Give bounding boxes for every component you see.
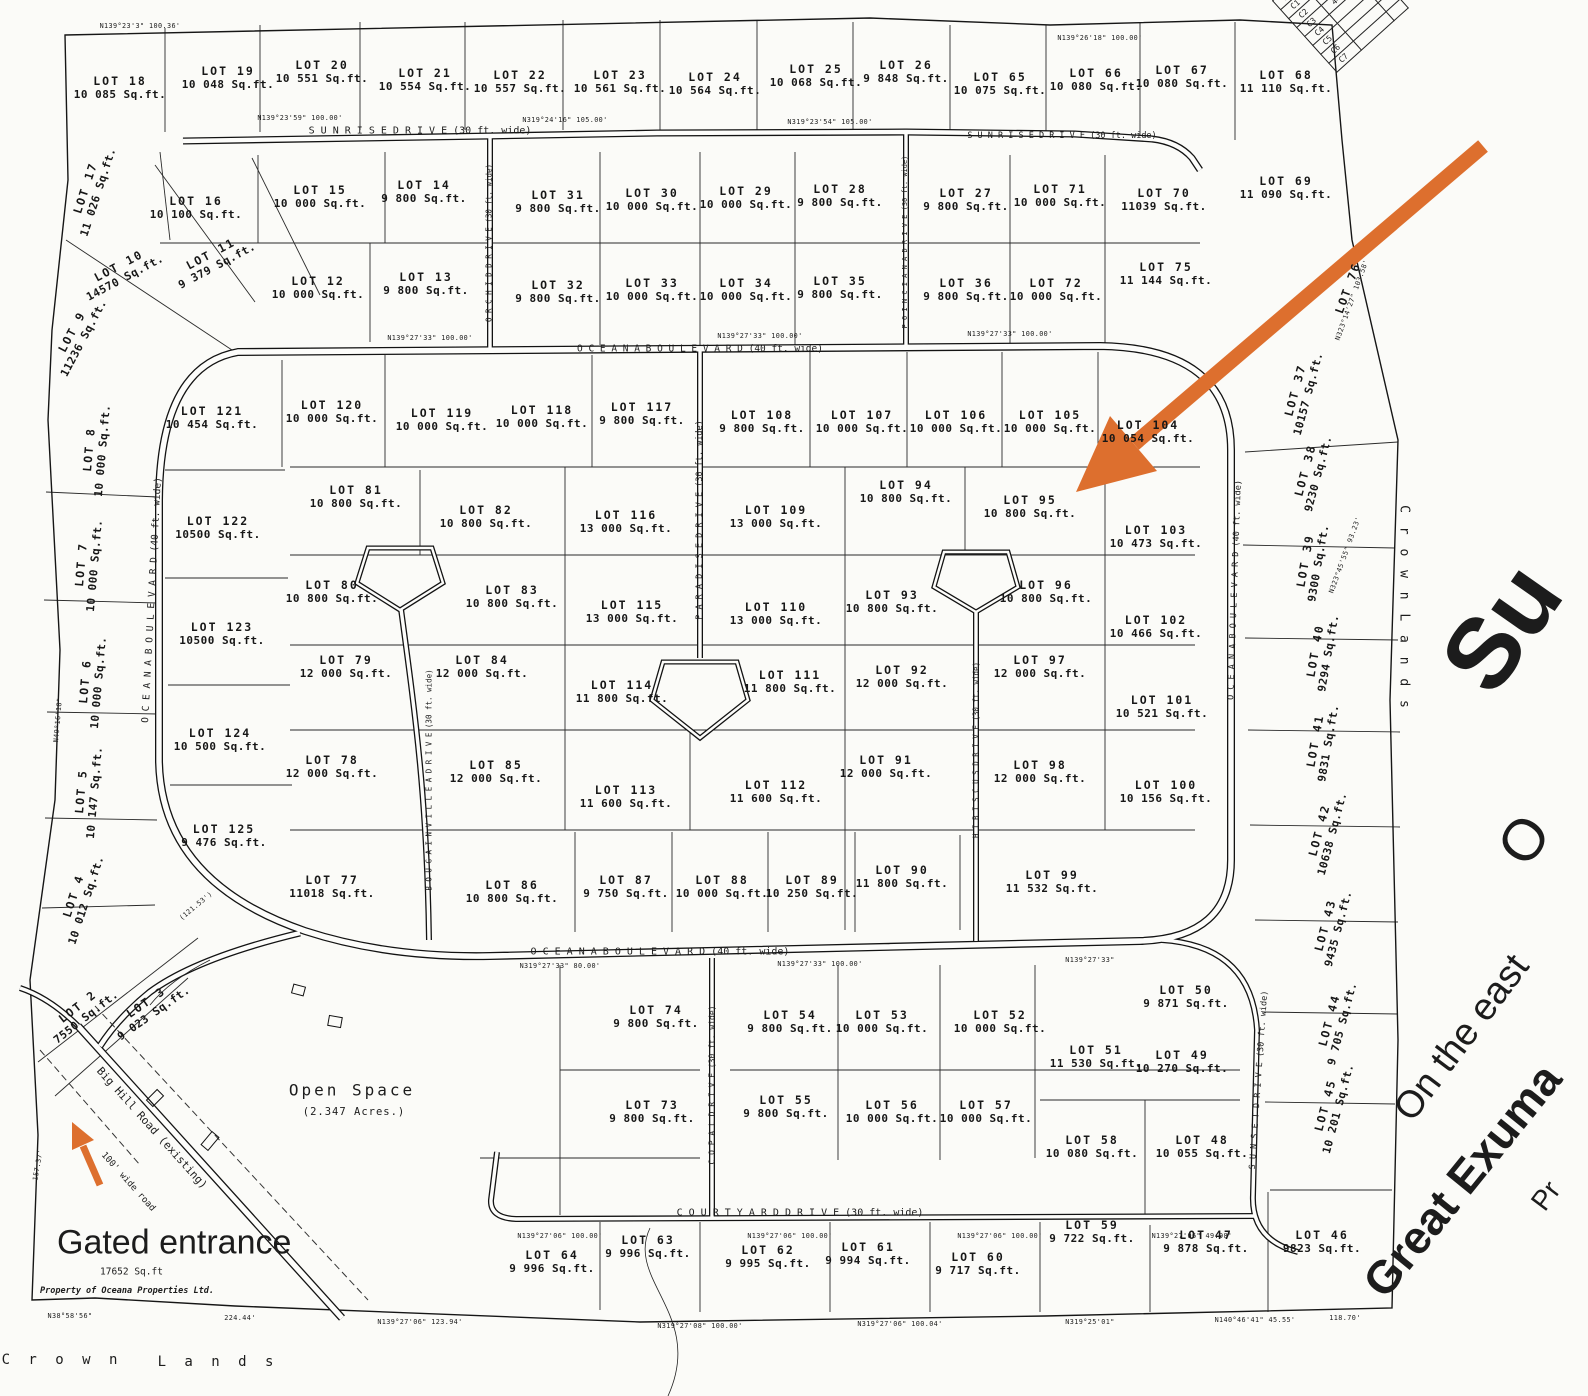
lot-number: LOT 15 — [274, 183, 367, 197]
lot-70-label: LOT 7011039 Sq.ft. — [1121, 186, 1206, 214]
lot-number: LOT 60 — [935, 1250, 1020, 1264]
lot-number: LOT 88 — [676, 873, 769, 887]
lot-64-label: LOT 649 996 Sq.ft. — [509, 1248, 594, 1276]
lot-56-label: LOT 5610 000 Sq.ft. — [846, 1098, 939, 1126]
lot-60-label: LOT 609 717 Sq.ft. — [935, 1250, 1020, 1278]
lot-number: LOT 26 — [863, 58, 948, 72]
lot-46-label: LOT 469823 Sq.ft. — [1283, 1228, 1361, 1256]
lot-51-label: LOT 5111 530 Sq.ft. — [1050, 1043, 1143, 1071]
lot-52-label: LOT 5210 000 Sq.ft. — [954, 1008, 1047, 1036]
lot-number: LOT 80 — [286, 578, 379, 592]
lot-12-label: LOT 1210 000 Sq.ft. — [272, 274, 365, 302]
lot-number: LOT 70 — [1121, 186, 1206, 200]
lot-area: 10 000 Sq.ft. — [836, 1022, 929, 1036]
lot-area: 9 717 Sq.ft. — [935, 1264, 1020, 1278]
lot-118-label: LOT 11810 000 Sq.ft. — [496, 403, 589, 431]
lot-area: 10 800 Sq.ft. — [984, 507, 1077, 521]
lot-number: LOT 33 — [606, 276, 699, 290]
lot-87-label: LOT 879 750 Sq.ft. — [583, 873, 668, 901]
copal: C O P A L D R I V E (30 ft. wide) — [708, 1006, 717, 1165]
lot-58-label: LOT 5810 080 Sq.ft. — [1046, 1133, 1139, 1161]
lot-24-label: LOT 2410 564 Sq.ft. — [669, 70, 762, 98]
lot-number: LOT 54 — [747, 1008, 832, 1022]
lot-78-label: LOT 7812 000 Sq.ft. — [286, 753, 379, 781]
lot-number: LOT 64 — [509, 1248, 594, 1262]
lot-number: LOT 35 — [797, 274, 882, 288]
lot-number: LOT 49 — [1136, 1048, 1229, 1062]
lot-number: LOT 86 — [466, 878, 559, 892]
lot-area: 12 000 Sq.ft. — [450, 772, 543, 786]
lot-area: 10 564 Sq.ft. — [669, 84, 762, 98]
lot-area: 9 995 Sq.ft. — [725, 1257, 810, 1271]
lot-number: LOT 125 — [181, 822, 266, 836]
lot-65-label: LOT 6510 075 Sq.ft. — [954, 70, 1047, 98]
lot-area: 10 080 Sq.ft. — [1050, 80, 1143, 94]
lot-area: 11039 Sq.ft. — [1121, 200, 1206, 214]
bearing-label-9: N139°27'33" 100.00' — [777, 960, 862, 968]
lot-number: LOT 119 — [396, 406, 489, 420]
lot-area: 11 600 Sq.ft. — [730, 792, 823, 806]
lot-54-label: LOT 549 800 Sq.ft. — [747, 1008, 832, 1036]
lot-104-label: LOT 10410 054 Sq.ft. — [1102, 418, 1195, 446]
lot-area: 10 000 Sq.ft. — [816, 422, 909, 436]
lot-area: 10 000 Sq.ft. — [700, 290, 793, 304]
lot-33-label: LOT 3310 000 Sq.ft. — [606, 276, 699, 304]
lot-area: 10 100 Sq.ft. — [150, 208, 243, 222]
lot-area: 9 800 Sq.ft. — [743, 1107, 828, 1121]
lot-number: LOT 68 — [1240, 68, 1333, 82]
bearing-label-19: N319°25'01" — [1065, 1318, 1114, 1326]
poinciana: P O I N C I A N A D R I V E (30 ft. wide… — [901, 156, 909, 329]
lot-number: LOT 57 — [940, 1098, 1033, 1112]
lot-area: 9 800 Sq.ft. — [923, 200, 1008, 214]
lot-area: 9 800 Sq.ft. — [923, 290, 1008, 304]
open-space-structure-2 — [327, 1015, 343, 1028]
lot-number: LOT 20 — [276, 58, 369, 72]
lot-number: LOT 75 — [1120, 260, 1213, 274]
lot-103-label: LOT 10310 473 Sq.ft. — [1110, 523, 1203, 551]
lot-area: 10 557 Sq.ft. — [474, 82, 567, 96]
lot-number: LOT 67 — [1136, 63, 1229, 77]
lot-number: LOT 27 — [923, 186, 1008, 200]
lot-area: 10 466 Sq.ft. — [1110, 627, 1203, 641]
lot-35-label: LOT 359 800 Sq.ft. — [797, 274, 882, 302]
lot-area: 11 144 Sq.ft. — [1120, 274, 1213, 288]
lot-68-label: LOT 6811 110 Sq.ft. — [1240, 68, 1333, 96]
lot-number: LOT 61 — [825, 1240, 910, 1254]
lot-number: LOT 53 — [836, 1008, 929, 1022]
paradise: P A R A D I S E D R I V E (30 ft. wide) — [695, 420, 705, 620]
bougainvillea: B O U G A I N V I L L E A D R I V E (30 … — [425, 669, 434, 890]
lot-number: LOT 124 — [174, 726, 267, 740]
lot-area: 9 800 Sq.ft. — [747, 1022, 832, 1036]
lot-area: 9 994 Sq.ft. — [825, 1254, 910, 1268]
lot-number: LOT 116 — [580, 508, 673, 522]
lot-82-label: LOT 8210 800 Sq.ft. — [440, 503, 533, 531]
lot-number: LOT 56 — [846, 1098, 939, 1112]
bearing-label-11: N139°27'06" 100.00' — [517, 1232, 602, 1240]
lot-area: 9 800 Sq.ft. — [609, 1112, 694, 1126]
lot-area: 10 080 Sq.ft. — [1046, 1147, 1139, 1161]
lot-area: 11 090 Sq.ft. — [1240, 188, 1333, 202]
lot-29-label: LOT 2910 000 Sq.ft. — [700, 184, 793, 212]
lot-number: LOT 77 — [289, 873, 374, 887]
oceana-bottom: O C E A N A B O U L E V A R D (40 ft. wi… — [531, 947, 790, 958]
lot-number: LOT 24 — [669, 70, 762, 84]
bearing-label-2: N319°24'16" 105.00' — [522, 116, 607, 124]
lot-85-label: LOT 8512 000 Sq.ft. — [450, 758, 543, 786]
lot-27-label: LOT 279 800 Sq.ft. — [923, 186, 1008, 214]
lot-number: LOT 55 — [743, 1093, 828, 1107]
lot-94-label: LOT 9410 800 Sq.ft. — [860, 478, 953, 506]
lot-area: 10 000 Sq.ft. — [606, 290, 699, 304]
lot-123-label: LOT 12310500 Sq.ft. — [179, 620, 264, 648]
lot-number: LOT 28 — [797, 182, 882, 196]
lot-area: 11 532 Sq.ft. — [1006, 882, 1099, 896]
lot-area: 12 000 Sq.ft. — [994, 667, 1087, 681]
lot-area: 10 800 Sq.ft. — [286, 592, 379, 606]
bearing-label-14: N139°27'06" 49.98' — [1152, 1232, 1233, 1240]
lot-area: 13 000 Sq.ft. — [730, 517, 823, 531]
lot-area: 10 068 Sq.ft. — [770, 76, 863, 90]
open-space-acres: (2.347 Acres.) — [303, 1106, 406, 1118]
lot-area: 10 000 Sq.ft. — [606, 200, 699, 214]
lot-53-label: LOT 5310 000 Sq.ft. — [836, 1008, 929, 1036]
lot-99-label: LOT 9911 532 Sq.ft. — [1006, 868, 1099, 896]
lot-number: LOT 97 — [994, 653, 1087, 667]
lot-area: 10 000 Sq.ft. — [700, 198, 793, 212]
lot-number: LOT 100 — [1120, 778, 1213, 792]
lot-area: 9 996 Sq.ft. — [605, 1247, 690, 1261]
bearing-label-17: N319°27'08" 100.00' — [657, 1322, 742, 1330]
lot-area: 10 800 Sq.ft. — [466, 892, 559, 906]
lot-number: LOT 95 — [984, 493, 1077, 507]
lot-number: LOT 25 — [770, 62, 863, 76]
lot-23-label: LOT 2310 561 Sq.ft. — [574, 68, 667, 96]
lot-area: 10 054 Sq.ft. — [1102, 432, 1195, 446]
lot-number: LOT 78 — [286, 753, 379, 767]
lot-number: LOT 104 — [1102, 418, 1195, 432]
lot-number: LOT 36 — [923, 276, 1008, 290]
lot-number: LOT 72 — [1010, 276, 1103, 290]
lot-91-label: LOT 9112 000 Sq.ft. — [840, 753, 933, 781]
lot-area: 10 048 Sq.ft. — [182, 78, 275, 92]
lot-area: 11 600 Sq.ft. — [580, 797, 673, 811]
lot-number: LOT 22 — [474, 68, 567, 82]
lot-area: 12 000 Sq.ft. — [436, 667, 529, 681]
lot-80-label: LOT 8010 800 Sq.ft. — [286, 578, 379, 606]
lot-area: 11 800 Sq.ft. — [744, 682, 837, 696]
lot-area: 9 750 Sq.ft. — [583, 887, 668, 901]
lot1-area: 17652 Sq.ft — [100, 1267, 163, 1278]
lot-area: 9 878 Sq.ft. — [1163, 1242, 1248, 1256]
lot-number: LOT 81 — [310, 483, 403, 497]
lot-108-label: LOT 1089 800 Sq.ft. — [719, 408, 804, 436]
lot-number: LOT 110 — [730, 600, 823, 614]
lot-area: 10 000 Sq.ft. — [1004, 422, 1097, 436]
lot-36-label: LOT 369 800 Sq.ft. — [923, 276, 1008, 304]
lot-number: LOT 93 — [846, 588, 939, 602]
lot-area: 10 800 Sq.ft. — [1000, 592, 1093, 606]
lot-number: LOT 99 — [1006, 868, 1099, 882]
lot-area: 10 473 Sq.ft. — [1110, 537, 1203, 551]
crown-lands-bottom-1: C r o w n — [2, 1352, 123, 1368]
lot-number: LOT 121 — [166, 404, 259, 418]
lot-109-label: LOT 10913 000 Sq.ft. — [730, 503, 823, 531]
bearing-label-13: N139°27'06" 100.00' — [957, 1232, 1042, 1240]
lot-area: 10 250 Sq.ft. — [766, 887, 859, 901]
lot-120-label: LOT 12010 000 Sq.ft. — [286, 398, 379, 426]
lot-number: LOT 23 — [574, 68, 667, 82]
lot-106-label: LOT 10610 000 Sq.ft. — [910, 408, 1003, 436]
lot-area: 10 085 Sq.ft. — [74, 88, 167, 102]
lot-25-label: LOT 2510 068 Sq.ft. — [770, 62, 863, 90]
lot-75-label: LOT 7511 144 Sq.ft. — [1120, 260, 1213, 288]
hibiscus: H I B I S C U S D R I V E (30 ft. wide) — [972, 662, 981, 838]
courtyard: C O U R T Y A R D D R I V E (30 ft. wide… — [677, 1208, 924, 1219]
lot-area: 11018 Sq.ft. — [289, 887, 374, 901]
lot-area: 12 000 Sq.ft. — [994, 772, 1087, 786]
lot-area: 10 800 Sq.ft. — [440, 517, 533, 531]
sunrise-left: S U N R I S E D R I V E (30 ft. wide) — [309, 126, 532, 137]
lot-area: 9 476 Sq.ft. — [181, 836, 266, 850]
lot-area: 9 800 Sq.ft. — [515, 202, 600, 216]
lot-number: LOT 92 — [856, 663, 949, 677]
lot-number: LOT 16 — [150, 194, 243, 208]
lot-number: LOT 118 — [496, 403, 589, 417]
lot-area: 10 454 Sq.ft. — [166, 418, 259, 432]
lot-111-label: LOT 11111 800 Sq.ft. — [744, 668, 837, 696]
lot-69-label: LOT 6911 090 Sq.ft. — [1240, 174, 1333, 202]
lot-area: 10 270 Sq.ft. — [1136, 1062, 1229, 1076]
lot-number: LOT 94 — [860, 478, 953, 492]
lot-number: LOT 115 — [586, 598, 679, 612]
lot-114-label: LOT 11411 800 Sq.ft. — [576, 678, 669, 706]
lot-number: LOT 63 — [605, 1233, 690, 1247]
lot-number: LOT 105 — [1004, 408, 1097, 422]
lot-area: 12 000 Sq.ft. — [840, 767, 933, 781]
lot-125-label: LOT 1259 476 Sq.ft. — [181, 822, 266, 850]
subdivision-plat-map: LOT 1810 085 Sq.ft.LOT 1910 048 Sq.ft.LO… — [0, 0, 1588, 1396]
lot-area: 9 800 Sq.ft. — [797, 196, 882, 210]
lot-number: LOT 73 — [609, 1098, 694, 1112]
lot-area: 10 561 Sq.ft. — [574, 82, 667, 96]
lot-84-label: LOT 8412 000 Sq.ft. — [436, 653, 529, 681]
lot-area: 11 110 Sq.ft. — [1240, 82, 1333, 96]
bearing-label-5: N139°27'33" 100.00' — [387, 334, 472, 342]
lot-number: LOT 71 — [1014, 182, 1107, 196]
lot-area: 13 000 Sq.ft. — [730, 614, 823, 628]
lot-102-label: LOT 10210 466 Sq.ft. — [1110, 613, 1203, 641]
lot-number: LOT 48 — [1156, 1133, 1249, 1147]
lot-number: LOT 14 — [381, 178, 466, 192]
lot-number: LOT 79 — [300, 653, 393, 667]
lot-62-label: LOT 629 995 Sq.ft. — [725, 1243, 810, 1271]
lot-area: 9823 Sq.ft. — [1283, 1242, 1361, 1256]
lot-number: LOT 29 — [700, 184, 793, 198]
lot-21-label: LOT 2110 554 Sq.ft. — [379, 66, 472, 94]
lot-area: 9 800 Sq.ft. — [719, 422, 804, 436]
crown-lands-bottom-2: L a n d s — [158, 1354, 279, 1370]
lot-71-label: LOT 7110 000 Sq.ft. — [1014, 182, 1107, 210]
lot-28-label: LOT 289 800 Sq.ft. — [797, 182, 882, 210]
lot-number: LOT 34 — [700, 276, 793, 290]
lot-59-label: LOT 599 722 Sq.ft. — [1049, 1218, 1134, 1246]
lot-number: LOT 50 — [1143, 983, 1228, 997]
lot-77-label: LOT 7711018 Sq.ft. — [289, 873, 374, 901]
property-of: Property of Oceana Properties Ltd. — [40, 1286, 214, 1296]
lot-number: LOT 122 — [175, 514, 260, 528]
lot-107-label: LOT 10710 000 Sq.ft. — [816, 408, 909, 436]
lot-number: LOT 103 — [1110, 523, 1203, 537]
lot-number: LOT 58 — [1046, 1133, 1139, 1147]
lot-number: LOT 66 — [1050, 66, 1143, 80]
lot-48-label: LOT 4810 055 Sq.ft. — [1156, 1133, 1249, 1161]
crown-lands-right: C r o w n L a n d s — [1397, 505, 1412, 711]
lot-area: 13 000 Sq.ft. — [586, 612, 679, 626]
lot-96-label: LOT 9610 800 Sq.ft. — [1000, 578, 1093, 606]
lot-116-label: LOT 11613 000 Sq.ft. — [580, 508, 673, 536]
lot-number: LOT 62 — [725, 1243, 810, 1257]
lot-22-label: LOT 2210 557 Sq.ft. — [474, 68, 567, 96]
lot-area: 10 075 Sq.ft. — [954, 84, 1047, 98]
lot-area: 12 000 Sq.ft. — [856, 677, 949, 691]
lot-number: LOT 107 — [816, 408, 909, 422]
lot-57-label: LOT 5710 000 Sq.ft. — [940, 1098, 1033, 1126]
lot-number: LOT 69 — [1240, 174, 1333, 188]
lot-area: 11 530 Sq.ft. — [1050, 1057, 1143, 1071]
bearing-label-3: N319°23'54" 105.00' — [787, 118, 872, 126]
lot-area: 12 000 Sq.ft. — [300, 667, 393, 681]
open-space: Open Space — [289, 1081, 415, 1100]
lot-34-label: LOT 3410 000 Sq.ft. — [700, 276, 793, 304]
lot-area: 9 800 Sq.ft. — [599, 414, 684, 428]
lot-area: 10 000 Sq.ft. — [496, 417, 589, 431]
lot-area: 9 800 Sq.ft. — [797, 288, 882, 302]
lot-55-label: LOT 559 800 Sq.ft. — [743, 1093, 828, 1121]
lot-number: LOT 112 — [730, 778, 823, 792]
lot-50-label: LOT 509 871 Sq.ft. — [1143, 983, 1228, 1011]
lot-area: 10 000 Sq.ft. — [1010, 290, 1103, 304]
lot-49-label: LOT 4910 270 Sq.ft. — [1136, 1048, 1229, 1076]
lot-number: LOT 82 — [440, 503, 533, 517]
lot-area: 10 800 Sq.ft. — [466, 597, 559, 611]
lot-number: LOT 51 — [1050, 1043, 1143, 1057]
lot-area: 10 156 Sq.ft. — [1120, 792, 1213, 806]
gated-entrance-arrow — [72, 1122, 100, 1185]
lot-72-label: LOT 7210 000 Sq.ft. — [1010, 276, 1103, 304]
bearing-label-8: N319°27'33" 80.00' — [520, 962, 601, 970]
lot-13-label: LOT 139 800 Sq.ft. — [383, 270, 468, 298]
lot-88-label: LOT 8810 000 Sq.ft. — [676, 873, 769, 901]
lot-number: LOT 117 — [599, 400, 684, 414]
lot-area: 10 500 Sq.ft. — [174, 740, 267, 754]
lot-16-label: LOT 1610 100 Sq.ft. — [150, 194, 243, 222]
lot-area: 10 000 Sq.ft. — [910, 422, 1003, 436]
lot-95-label: LOT 9510 800 Sq.ft. — [984, 493, 1077, 521]
lot-113-label: LOT 11311 600 Sq.ft. — [580, 783, 673, 811]
lot-area: 9 800 Sq.ft. — [383, 284, 468, 298]
lot-19-label: LOT 1910 048 Sq.ft. — [182, 64, 275, 92]
lot-101-label: LOT 10110 521 Sq.ft. — [1116, 693, 1209, 721]
lot-73-label: LOT 739 800 Sq.ft. — [609, 1098, 694, 1126]
lot-area: 10 000 Sq.ft. — [396, 420, 489, 434]
lot-number: LOT 85 — [450, 758, 543, 772]
bearing-label-26: N38°58'56" — [48, 1312, 93, 1320]
lot-area: 11 800 Sq.ft. — [856, 877, 949, 891]
bearing-label-10: N139°27'33" — [1065, 956, 1114, 964]
lot-number: LOT 87 — [583, 873, 668, 887]
lot-number: LOT 32 — [515, 278, 600, 292]
gated-entrance: Gated entrance — [57, 1224, 291, 1263]
lot-area: 10 800 Sq.ft. — [310, 497, 403, 511]
lot-area: 10 000 Sq.ft. — [272, 288, 365, 302]
lot-number: LOT 120 — [286, 398, 379, 412]
lot-112-label: LOT 11211 600 Sq.ft. — [730, 778, 823, 806]
lot-117-label: LOT 1179 800 Sq.ft. — [599, 400, 684, 428]
lot-115-label: LOT 11513 000 Sq.ft. — [586, 598, 679, 626]
lot-number: LOT 84 — [436, 653, 529, 667]
lot-number: LOT 113 — [580, 783, 673, 797]
bearing-label-20: N140°46'41" 45.55' — [1215, 1316, 1296, 1324]
lot-98-label: LOT 9812 000 Sq.ft. — [994, 758, 1087, 786]
lot-area: 10 551 Sq.ft. — [276, 72, 369, 86]
lot-area: 10 000 Sq.ft. — [1014, 196, 1107, 210]
lot-110-label: LOT 11013 000 Sq.ft. — [730, 600, 823, 628]
lot-number: LOT 91 — [840, 753, 933, 767]
bearing-label-0: N139°23'3" 100.36' — [100, 22, 181, 30]
lot-15-label: LOT 1510 000 Sq.ft. — [274, 183, 367, 211]
lot-105-label: LOT 10510 000 Sq.ft. — [1004, 408, 1097, 436]
lot-area: 10 554 Sq.ft. — [379, 80, 472, 94]
lot-121-label: LOT 12110 454 Sq.ft. — [166, 404, 259, 432]
lot-area: 10 000 Sq.ft. — [846, 1112, 939, 1126]
lot-63-label: LOT 639 996 Sq.ft. — [605, 1233, 690, 1261]
bearing-label-7: N139°27'33" 100.00' — [967, 330, 1052, 338]
lot-area: 10 000 Sq.ft. — [274, 197, 367, 211]
lot-area: 10 521 Sq.ft. — [1116, 707, 1209, 721]
lot-number: LOT 12 — [272, 274, 365, 288]
lot-18-label: LOT 1810 085 Sq.ft. — [74, 74, 167, 102]
lot-number: LOT 108 — [719, 408, 804, 422]
lot-number: LOT 19 — [182, 64, 275, 78]
lot-122-label: LOT 12210500 Sq.ft. — [175, 514, 260, 542]
lot-area: 12 000 Sq.ft. — [286, 767, 379, 781]
lot-number: LOT 98 — [994, 758, 1087, 772]
sunrise-right: S U N R I S E D R I V E (30 ft. wide) — [967, 131, 1156, 141]
lot-area: 10 000 Sq.ft. — [940, 1112, 1033, 1126]
lot-number: LOT 46 — [1283, 1228, 1361, 1242]
lot-31-label: LOT 319 800 Sq.ft. — [515, 188, 600, 216]
lot-number: LOT 30 — [606, 186, 699, 200]
lot-number: LOT 96 — [1000, 578, 1093, 592]
lot-20-label: LOT 2010 551 Sq.ft. — [276, 58, 369, 86]
lot-number: LOT 83 — [466, 583, 559, 597]
lot-area: 9 800 Sq.ft. — [613, 1017, 698, 1031]
lot-area: 10 000 Sq.ft. — [286, 412, 379, 426]
lot-number: LOT 13 — [383, 270, 468, 284]
lot-66-label: LOT 6610 080 Sq.ft. — [1050, 66, 1143, 94]
lot-number: LOT 101 — [1116, 693, 1209, 707]
lot-area: 10 800 Sq.ft. — [846, 602, 939, 616]
lot-area: 11 800 Sq.ft. — [576, 692, 669, 706]
lot-area: 10 800 Sq.ft. — [860, 492, 953, 506]
bearing-label-16: N139°27'06" 123.94' — [377, 1318, 462, 1326]
lot-97-label: LOT 9712 000 Sq.ft. — [994, 653, 1087, 681]
lot-number: LOT 31 — [515, 188, 600, 202]
lot-124-label: LOT 12410 500 Sq.ft. — [174, 726, 267, 754]
lot-number: LOT 90 — [856, 863, 949, 877]
